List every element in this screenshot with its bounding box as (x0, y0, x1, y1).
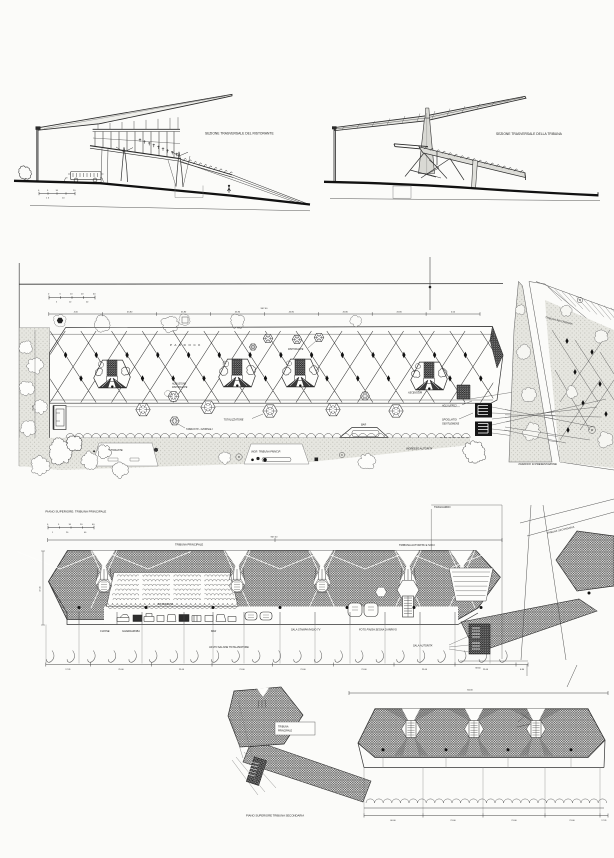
svg-text:PIANO SUPERIORE: TRIBUNA PRI: PIANO SUPERIORE: TRIBUNA PRINCIPALE (45, 510, 106, 514)
svg-text:RISTORANTE: RISTORANTE (172, 386, 188, 389)
svg-text:RISTORANTE: RISTORANTE (288, 348, 304, 351)
svg-text:947.00: 947.00 (271, 536, 278, 538)
svg-text:RISTORANTE: RISTORANTE (158, 603, 174, 606)
svg-text:SPOGLIATOI: SPOGLIATOI (442, 419, 457, 422)
svg-text:INGR. TRIBUNA PRINCIP.: INGR. TRIBUNA PRINCIP. (251, 451, 281, 454)
svg-text:25.00: 25.00 (422, 669, 428, 671)
svg-text:21.00: 21.00 (450, 820, 456, 822)
svg-text:TRIBUNA: TRIBUNA (278, 726, 289, 729)
svg-text:TRIBUNA PRINCIPALE: TRIBUNA PRINCIPALE (175, 542, 203, 546)
svg-text:SEZIONE TRASVERSALE DELLA TRIB: SEZIONE TRASVERSALE DELLA TRIBUNA (496, 132, 563, 136)
svg-text:21.00: 21.00 (300, 669, 306, 671)
svg-text:45.80: 45.80 (127, 311, 133, 313)
svg-text:84.00: 84.00 (467, 689, 473, 691)
svg-text:21.00: 21.00 (569, 820, 575, 822)
svg-text:CUCINE: CUCINE (100, 630, 110, 633)
svg-text:SALA STAMPA RADIO TV: SALA STAMPA RADIO TV (291, 629, 321, 632)
svg-text:ASCENSORI: ASCENSORI (407, 392, 422, 395)
svg-text:37.45: 37.45 (40, 586, 42, 592)
svg-text:68.60: 68.60 (475, 668, 481, 670)
svg-text:PADDOCK DI PRESENTAZIONE: PADDOCK DI PRESENTAZIONE (519, 462, 558, 466)
svg-text:25.00: 25.00 (483, 669, 489, 671)
svg-text:SEZIONE TRASVERSALE DEL RISTOR: SEZIONE TRASVERSALE DEL RISTORANTE (205, 132, 274, 136)
svg-text:TABACCHI - GIORNALI: TABACCHI - GIORNALI (186, 428, 213, 431)
svg-text:21.00: 21.00 (511, 820, 517, 822)
svg-text:947.00: 947.00 (261, 308, 268, 310)
svg-text:BAR: BAR (211, 630, 216, 633)
svg-text:25.00: 25.00 (179, 669, 185, 671)
svg-text:21.00: 21.00 (361, 669, 367, 671)
svg-text:FOTO FINISH SEGNA D’ARRIVO: FOTO FINISH SEGNA D’ARRIVO (359, 629, 397, 632)
svg-text:AGLI UFFICI: AGLI UFFICI (441, 404, 457, 407)
svg-text:21.00: 21.00 (239, 669, 245, 671)
svg-text:PIANO SUPERIORE TRIBUNA SEC: PIANO SUPERIORE TRIBUNA SECONDARIA (246, 814, 304, 818)
svg-text:60.00: 60.00 (390, 820, 396, 822)
svg-text:SALA AUTORITA’: SALA AUTORITA’ (413, 645, 433, 648)
svg-text:PRINCIPALE: PRINCIPALE (278, 730, 292, 733)
svg-text:45.80: 45.80 (289, 311, 295, 313)
svg-text:45.80: 45.80 (343, 311, 349, 313)
svg-text:P A D D O C K: P A D D O C K (170, 343, 201, 347)
svg-text:GUARDAROBA: GUARDAROBA (122, 630, 140, 633)
svg-text:17.31: 17.31 (601, 820, 607, 822)
svg-text:TRAGUARDO: TRAGUARDO (434, 505, 451, 509)
svg-text:17.31: 17.31 (65, 669, 71, 671)
svg-text:45.00: 45.00 (33, 405, 35, 411)
svg-text:45.80: 45.80 (397, 311, 403, 313)
svg-text:45.80: 45.80 (235, 311, 241, 313)
svg-text:TRIBUNA AUTORITA’ E SOCI: TRIBUNA AUTORITA’ E SOCI (399, 543, 435, 547)
svg-text:VASTO SALONE TOTALIZZATORE: VASTO SALONE TOTALIZZATORE (209, 646, 249, 649)
svg-text:TOTALIZZATORE: TOTALIZZATORE (224, 418, 244, 421)
svg-text:25.00: 25.00 (118, 669, 124, 671)
svg-text:INGRESSO AUTORITA’: INGRESSO AUTORITA’ (406, 448, 433, 451)
svg-text:GENTLEMENS: GENTLEMENS (442, 423, 460, 426)
svg-text:45.80: 45.80 (181, 311, 187, 313)
svg-text:BAR: BAR (361, 424, 366, 427)
